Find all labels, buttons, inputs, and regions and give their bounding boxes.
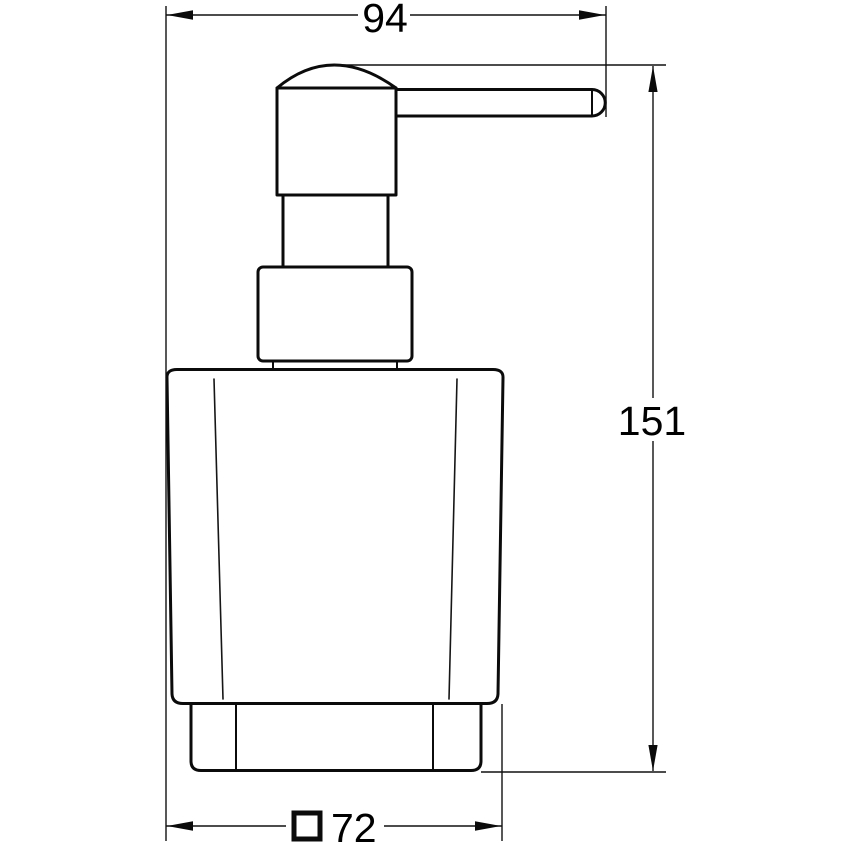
arrowhead-down-icon xyxy=(648,745,657,771)
height-dimension-label: 151 xyxy=(618,398,686,444)
holder-outline xyxy=(191,704,481,771)
dimension-base-bottom: 72 xyxy=(166,704,502,848)
pump-head-body xyxy=(277,88,396,195)
collar-outline xyxy=(258,267,412,361)
spout-outline xyxy=(396,90,605,117)
pump-spout xyxy=(396,90,605,117)
width-dimension-label: 94 xyxy=(362,0,408,41)
square-section-symbol-icon xyxy=(294,813,320,839)
bottle-body xyxy=(167,370,503,704)
pump-dome xyxy=(277,65,396,88)
base-dimension-label: 72 xyxy=(331,805,377,848)
arrowhead-up-icon xyxy=(648,66,657,92)
technical-drawing-canvas: 94 151 72 xyxy=(0,0,848,848)
pump-head xyxy=(277,65,396,195)
arrowhead-left-icon xyxy=(167,821,193,831)
arrowhead-right-icon xyxy=(579,10,605,20)
holder-ring xyxy=(191,704,481,771)
pump-neck xyxy=(283,195,388,267)
soap-dispenser-dimension-drawing: 94 151 72 xyxy=(0,0,848,848)
arrowhead-right-icon xyxy=(475,821,501,831)
pump-collar xyxy=(258,267,412,369)
arrowhead-left-icon xyxy=(167,10,193,20)
